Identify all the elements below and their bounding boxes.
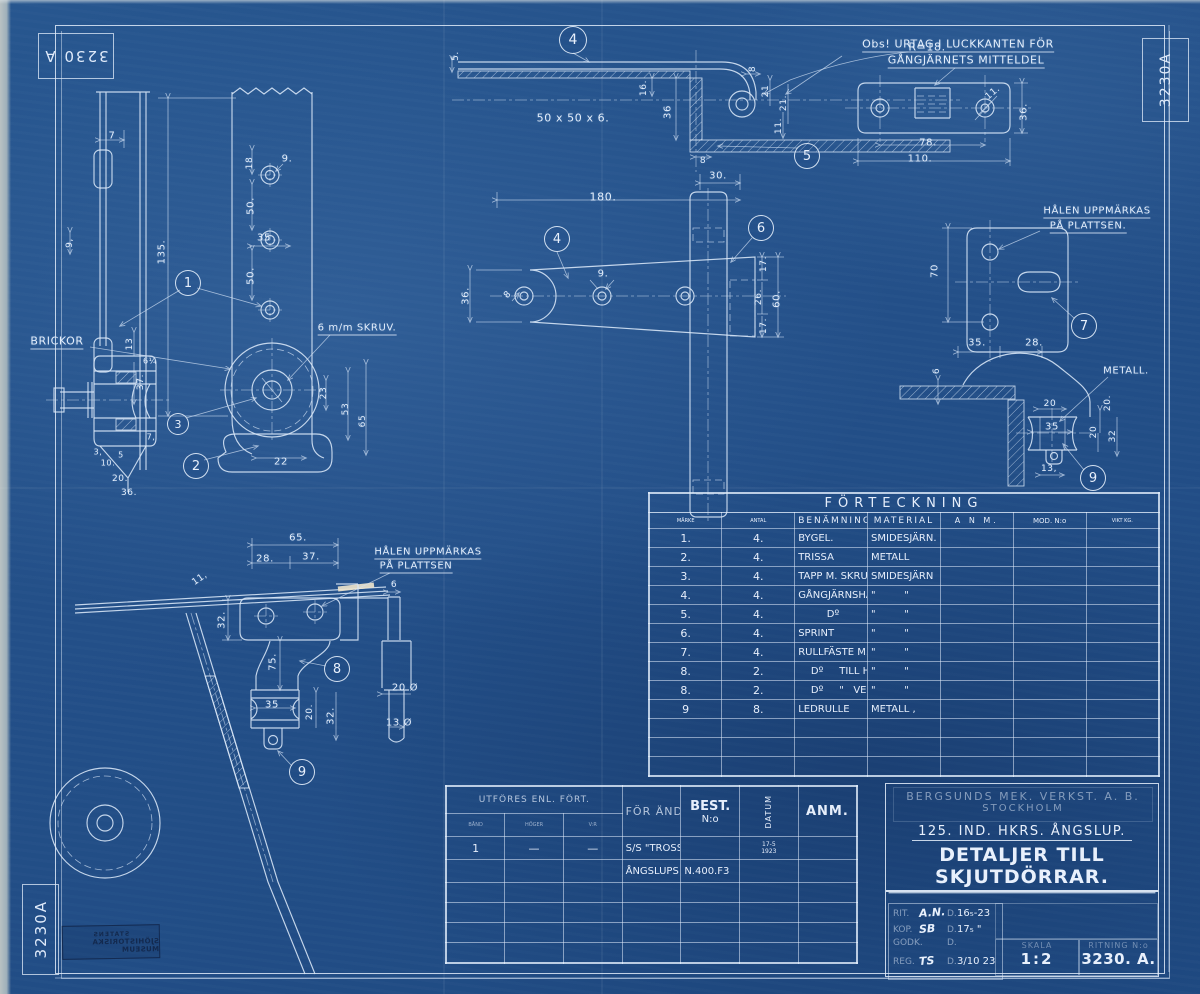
drawing-subtitle: 125. IND. HKRS. ÅNGSLUP. (886, 824, 1158, 839)
order-cell: — (505, 837, 564, 860)
dimension-label: 78. (919, 138, 937, 149)
order-subcolumn-header: BÅND (446, 814, 505, 837)
parts-table-row: 3.4.TAPP M. SKRUV Ö. BRICKORSMIDESJÄRN (649, 567, 1159, 586)
parts-cell (1086, 567, 1159, 586)
drawing-number-stamp-bottom-left: 3230A (22, 884, 59, 975)
parts-cell (722, 757, 795, 777)
parts-cell: Dº " VENSTER (795, 681, 868, 700)
dimension-label: 110. (908, 154, 933, 165)
parts-cell (722, 738, 795, 757)
parts-cell: 4. (722, 586, 795, 605)
signature-lab: RIT. (893, 909, 919, 919)
dimension-label: 32. (326, 707, 337, 725)
signature-sig: TS (919, 953, 948, 968)
parts-cell: 1. (649, 529, 722, 548)
parts-list-table: FÖRTECKNING MÄRKEANTALBENÄMNINGMATERIALA… (648, 492, 1160, 777)
parts-cell (868, 757, 941, 777)
datum-label: DATUM (764, 795, 773, 829)
dimension-label: 65 (358, 415, 368, 428)
museum-stamp-line2: SJÖHISTORISKA MUSEUM (63, 937, 159, 955)
parts-cell (868, 719, 941, 738)
order-subcolumn-header: HÖGER (505, 814, 564, 837)
parts-cell (1086, 605, 1159, 624)
parts-cell (1013, 643, 1086, 662)
dimension-label: 53 (341, 403, 351, 416)
parts-cell (795, 719, 868, 738)
parts-cell: BYGEL. (795, 529, 868, 548)
dimension-label: 18 (245, 157, 255, 170)
parts-column-header: MATERIAL (868, 513, 941, 529)
parts-cell (1013, 757, 1086, 777)
parts-cell (940, 738, 1013, 757)
parts-cell (1013, 567, 1086, 586)
order-table-row (446, 883, 857, 903)
drawing-title-text: DETALJER TILL SKJUTDÖRRAR. (886, 844, 1158, 892)
signature-dd: D. (947, 925, 957, 935)
parts-cell: Dº TILL HÖGER (795, 662, 868, 681)
dimension-label: 35 (1045, 422, 1059, 433)
dimension-label: 7, (147, 433, 156, 442)
dimension-label: 6 (391, 580, 397, 590)
parts-cell (795, 738, 868, 757)
parts-cell: 8. (649, 681, 722, 700)
part-balloon: 7 (1071, 313, 1097, 339)
order-cell: S/S "TROSSÖ" KARLSKRONA (622, 837, 681, 860)
dimension-label: 65. (289, 533, 307, 544)
paper-edge (0, 0, 11, 994)
parts-column-header: MÄRKE (649, 513, 722, 529)
scale-value: 1:2 (996, 950, 1078, 968)
parts-table-row: 5.4. Dº" " (649, 605, 1159, 624)
parts-cell (1013, 719, 1086, 738)
order-header-andamal: FÖR ÄNDAMÅL (622, 786, 681, 837)
dimension-label: 32 (1108, 430, 1118, 443)
dimension-label: 32. (217, 611, 228, 629)
dimension-label: 8 (700, 156, 706, 166)
parts-cell (1013, 624, 1086, 643)
dimension-label: 50. (246, 197, 257, 215)
part-balloon: 3 (167, 413, 189, 435)
parts-cell (1086, 719, 1159, 738)
signature-sig: SB (919, 921, 948, 936)
parts-table-body: FÖRTECKNING MÄRKEANTALBENÄMNINGMATERIALA… (649, 493, 1159, 776)
order-cell (622, 903, 681, 923)
order-cell (563, 943, 622, 964)
company-stamp: BERGSUNDS MEK. VERKST. A. B. STOCKHOLM (893, 787, 1153, 822)
dimension-label: 21 (761, 85, 771, 98)
order-cell (681, 943, 740, 964)
order-table-row: ÅNGSLUPS A.B.N.400.F3 (446, 860, 857, 883)
parts-table-title: FÖRTECKNING (649, 493, 1159, 513)
dimension-label: 20. (305, 704, 315, 720)
parts-table-row: 6.4.SPRINT" " (649, 624, 1159, 643)
parts-cell: " " (868, 624, 941, 643)
parts-cell: TAPP M. SKRUV Ö. BRICKOR (795, 567, 868, 586)
parts-cell: 3. (649, 567, 722, 586)
parts-column-header: A N M. (940, 513, 1013, 529)
paper-edge-top (0, 0, 1200, 4)
parts-cell: 4. (722, 548, 795, 567)
dimension-label: 75. (268, 653, 279, 671)
order-cell (740, 903, 799, 923)
dimension-label: 17. (759, 256, 769, 272)
order-cell (798, 837, 857, 860)
order-table-row: 1——S/S "TROSSÖ" KARLSKRONA17-51923 (446, 837, 857, 860)
order-cell (622, 923, 681, 943)
parts-cell: " " (868, 605, 941, 624)
order-cell (505, 903, 564, 923)
stamp-text: 3230 A (43, 47, 108, 65)
order-datum-line: 17-5 (743, 841, 795, 848)
best-label: BEST. (684, 799, 736, 814)
dimension-label: 17. (759, 318, 769, 334)
order-cell: — (563, 837, 622, 860)
dimension-label: 21. (779, 95, 789, 111)
drawing-number-value: 3230. A. (1080, 950, 1157, 968)
parts-cell (1013, 738, 1086, 757)
dimension-label: 13 (125, 338, 135, 351)
part-balloon: 4 (544, 226, 570, 252)
parts-cell (940, 548, 1013, 567)
dimension-label: 20 (1044, 399, 1057, 409)
empty-field-box (995, 903, 1158, 939)
parts-cell (940, 700, 1013, 719)
parts-table-row: 8.2. Dº TILL HÖGER" " (649, 662, 1159, 681)
parts-cell (1013, 662, 1086, 681)
parts-table-title-row: FÖRTECKNING (649, 493, 1159, 513)
parts-cell (1013, 548, 1086, 567)
stamp-text: 3230A (1158, 52, 1174, 107)
dimension-label: PÅ PLATTSEN. (1050, 221, 1127, 234)
signature-dd: D. (947, 909, 957, 919)
dimension-label: 5. (451, 51, 461, 61)
parts-cell (1086, 586, 1159, 605)
dimension-label: 20. (1103, 395, 1113, 411)
company-city: STOCKHOLM (894, 803, 1152, 814)
order-table-row (446, 903, 857, 923)
parts-cell (722, 719, 795, 738)
parts-cell: " " (868, 643, 941, 662)
signature-row: REG.TSD.3/10 23 (893, 954, 998, 970)
part-balloon: 9 (1080, 465, 1106, 491)
order-cell (563, 883, 622, 903)
parts-cell: 4. (722, 567, 795, 586)
order-cell (798, 923, 857, 943)
drawing-number-label: RITNING N:o (1080, 941, 1157, 950)
parts-column-header: ANTAL (722, 513, 795, 529)
dimension-label: 36. (461, 287, 472, 305)
parts-column-header: BENÄMNING (795, 513, 868, 529)
parts-cell: GÅNGJÄRNSHALVA (795, 586, 868, 605)
parts-cell: 4. (649, 586, 722, 605)
scale-box: SKALA 1:2 (995, 939, 1079, 976)
dimension-label: 6 (932, 368, 942, 374)
dimension-label: GÅNGJÄRNETS MITTELDEL (888, 54, 1045, 69)
parts-cell (1086, 643, 1159, 662)
parts-cell (1086, 624, 1159, 643)
parts-cell (649, 719, 722, 738)
parts-table-row: 2.4.TRISSAMETALL (649, 548, 1159, 567)
parts-cell: 5. (649, 605, 722, 624)
order-cell (681, 837, 740, 860)
parts-cell: SMIDESJÄRN (868, 567, 941, 586)
parts-cell: 2. (649, 548, 722, 567)
parts-table-empty-row (649, 738, 1159, 757)
order-cell: N.400.F3 (681, 860, 740, 883)
parts-table-row: 4.4.GÅNGJÄRNSHALVA" " (649, 586, 1159, 605)
dimension-label: 3, (94, 448, 103, 457)
parts-cell: Dº (795, 605, 868, 624)
parts-table-empty-row (649, 719, 1159, 738)
parts-cell (1086, 738, 1159, 757)
dimension-label: 37. (302, 552, 320, 563)
parts-cell: 6. (649, 624, 722, 643)
parts-cell: 2. (722, 681, 795, 700)
parts-cell (1013, 586, 1086, 605)
dimension-label: 36. (1019, 103, 1030, 121)
order-cell (446, 860, 505, 883)
parts-cell (1086, 757, 1159, 777)
signature-lab: KOP. (893, 925, 919, 935)
order-cell (446, 883, 505, 903)
parts-cell (1013, 700, 1086, 719)
part-balloon: 9 (289, 759, 315, 785)
parts-cell: SMIDESJÄRN. (868, 529, 941, 548)
parts-cell (940, 529, 1013, 548)
museum-stamp: STATENS SJÖHISTORISKA MUSEUM (62, 924, 161, 960)
parts-cell: 8. (649, 662, 722, 681)
signature-date: 17₅ " (957, 924, 982, 935)
parts-cell (1086, 548, 1159, 567)
part-balloon: 1 (175, 270, 201, 296)
dimension-label: 28. (256, 554, 274, 565)
order-table-row (446, 943, 857, 964)
parts-cell (795, 757, 868, 777)
parts-cell: RULLFÄSTE M. BRICKA Ö. SPRINT (795, 643, 868, 662)
best-no-label: N:o (684, 814, 736, 825)
parts-cell (940, 605, 1013, 624)
order-cell (563, 923, 622, 943)
order-datum-line: 1923 (743, 848, 795, 855)
parts-table-row: 7.4.RULLFÄSTE M. BRICKA Ö. SPRINT" " (649, 643, 1159, 662)
parts-table-row: 98.LEDRULLEMETALL , (649, 700, 1159, 719)
order-cell (505, 943, 564, 964)
dimension-label: 50 x 50 x 6. (537, 112, 610, 125)
order-cell (681, 923, 740, 943)
dimension-label: 26. (754, 289, 764, 305)
order-cell (446, 943, 505, 964)
parts-cell: " " (868, 586, 941, 605)
signature-date: 3/10 23 (957, 956, 995, 967)
order-cell (740, 883, 799, 903)
parts-cell: " " (868, 662, 941, 681)
order-cell (681, 883, 740, 903)
signature-sig: A.N. (919, 905, 948, 920)
parts-cell (1013, 681, 1086, 700)
dimension-label: 11. (774, 118, 784, 134)
dimension-label: 13, (1041, 464, 1057, 474)
order-cell (740, 923, 799, 943)
dimension-label: HÅLEN UPPMÄRKAS (1043, 206, 1150, 219)
order-header-anm: ANM. (798, 786, 857, 837)
order-cell (740, 943, 799, 964)
dimension-label: 35 (265, 700, 279, 711)
dimension-label: 23 (319, 387, 329, 400)
parts-cell (1086, 662, 1159, 681)
dimension-label: 135. (157, 240, 168, 265)
signature-lab: GODK. (893, 938, 919, 948)
parts-cell (1013, 529, 1086, 548)
parts-cell: SPRINT (795, 624, 868, 643)
parts-cell (940, 662, 1013, 681)
order-cell (740, 860, 799, 883)
company-name: BERGSUNDS MEK. VERKST. A. B. (894, 790, 1152, 803)
part-balloon: 8 (324, 656, 350, 682)
parts-cell (1013, 605, 1086, 624)
parts-cell: METALL (868, 548, 941, 567)
dimension-label: 60. (772, 290, 783, 308)
dimension-label: 10. (101, 459, 116, 468)
order-cell: 1 (446, 837, 505, 860)
signature-row: GODK.D. (893, 938, 998, 954)
parts-cell: 8. (722, 700, 795, 719)
drawing-number-stamp-top-left: 3230 A (38, 33, 114, 79)
dimension-label: 5 (118, 451, 124, 460)
part-balloon: 2 (183, 453, 209, 479)
parts-cell: " " (868, 681, 941, 700)
parts-cell (940, 567, 1013, 586)
parts-cell: 2. (722, 662, 795, 681)
order-table: UTFÖRES ENL. FÖRT. FÖR ÄNDAMÅL BEST. N:o… (445, 785, 858, 964)
order-cell (505, 923, 564, 943)
dimension-label: 13 Ø (386, 718, 412, 729)
part-balloon: 4 (559, 26, 587, 54)
order-table-row (446, 923, 857, 943)
drawing-number-stamp-top-right: 3230A (1142, 38, 1189, 122)
signature-dd: D. (947, 957, 957, 967)
order-cell (681, 903, 740, 923)
dimension-label: 6 m/m SKRUV. (318, 323, 397, 336)
title-block: BERGSUNDS MEK. VERKST. A. B. STOCKHOLM 1… (885, 783, 1159, 977)
drawing-number-box: RITNING N:o 3230. A. (1079, 939, 1158, 976)
dimension-label: 28. (1025, 338, 1043, 349)
parts-column-header: VIKT KG. (1086, 513, 1159, 529)
parts-cell: 7. (649, 643, 722, 662)
dimension-label: 6¼ (143, 357, 157, 366)
signature-date: 16₅-23 (957, 908, 990, 919)
dimension-label: HÅLEN UPPMÄRKAS (374, 547, 481, 560)
dimension-label: 8 (748, 66, 758, 72)
part-balloon: 6 (748, 215, 774, 241)
order-cell (798, 903, 857, 923)
signature-sig (919, 944, 947, 946)
parts-cell (940, 586, 1013, 605)
order-cell (446, 923, 505, 943)
dimension-label: 70 (930, 264, 941, 278)
parts-table-row: 8.2. Dº " VENSTER" " (649, 681, 1159, 700)
order-header-datum: DATUM (740, 786, 799, 837)
dimension-label: METALL. (1103, 366, 1149, 377)
parts-cell (868, 738, 941, 757)
stamp-text: 3230A (32, 900, 50, 958)
dimension-label: 20. (112, 474, 128, 484)
order-table-header-row1: UTFÖRES ENL. FÖRT. FÖR ÄNDAMÅL BEST. N:o… (446, 786, 857, 814)
drawing-title: DETALJER TILL SKJUTDÖRRAR. (886, 844, 1158, 892)
parts-cell (1086, 700, 1159, 719)
parts-cell: 4. (722, 624, 795, 643)
dimension-label: 30. (709, 171, 727, 182)
parts-cell: 4. (722, 643, 795, 662)
parts-table-header: MÄRKEANTALBENÄMNINGMATERIALA N M.MOD. N:… (649, 513, 1159, 529)
dimension-label: 180. (590, 191, 617, 204)
order-cell: ÅNGSLUPS A.B. (622, 860, 681, 883)
parts-table-empty-row (649, 757, 1159, 777)
parts-cell (940, 757, 1013, 777)
dimension-label: 9. (282, 154, 293, 165)
scale-label: SKALA (996, 941, 1078, 950)
dimension-label: 36 (663, 105, 674, 119)
parts-cell (1086, 529, 1159, 548)
signature-row: RIT.A.N.D.16₅-23 (893, 906, 998, 922)
dimension-label: 22 (274, 457, 288, 468)
order-cell (563, 860, 622, 883)
dimension-label: 35 (257, 233, 271, 244)
order-cell (563, 903, 622, 923)
order-cell: 17-51923 (740, 837, 799, 860)
parts-cell: METALL , (868, 700, 941, 719)
order-header-utfores: UTFÖRES ENL. FÖRT. (446, 786, 622, 814)
parts-table-row: 1.4.BYGEL.SMIDESJÄRN. (649, 529, 1159, 548)
dimension-label: 50. (246, 267, 257, 285)
parts-cell (940, 624, 1013, 643)
parts-cell: TRISSA (795, 548, 868, 567)
dimension-label: 7 (109, 131, 116, 142)
parts-cell (649, 757, 722, 777)
dimension-label: PÅ PLATTSEN (380, 561, 453, 574)
parts-cell (649, 738, 722, 757)
parts-cell: 4. (722, 605, 795, 624)
dimension-label: Obs! URTAG I LUCKKANTEN FÖR (862, 38, 1054, 53)
blueprint-sheet: .lw{stroke:#dbe8f8;fill:none;stroke-widt… (0, 0, 1200, 994)
order-cell (446, 903, 505, 923)
parts-cell (940, 719, 1013, 738)
signature-box: RIT.A.N.D.16₅-23KOP.SBD.17₅ "GODK.D.REG.… (888, 903, 1003, 980)
parts-cell: LEDRULLE (795, 700, 868, 719)
dimension-label: 36. (121, 488, 137, 498)
order-cell (505, 860, 564, 883)
dimension-label: 9. (598, 269, 609, 280)
order-cell (798, 883, 857, 903)
signature-lab: REG. (893, 957, 919, 967)
order-cell (798, 943, 857, 964)
dimension-label: 35. (968, 338, 986, 349)
order-cell (622, 943, 681, 964)
drawing-subtitle-text: 125. IND. HKRS. ÅNGSLUP. (912, 824, 1132, 841)
order-cell (798, 860, 857, 883)
parts-cell: 9 (649, 700, 722, 719)
order-cell (505, 883, 564, 903)
signature-dd: D. (947, 938, 957, 948)
order-header-best: BEST. N:o (681, 786, 740, 837)
dimension-label: BRICKOR (30, 335, 83, 350)
parts-cell: 4. (722, 529, 795, 548)
dimension-label: 20 (1089, 426, 1099, 439)
parts-cell (940, 643, 1013, 662)
signature-row: KOP.SBD.17₅ " (893, 922, 998, 938)
part-balloon: 5 (794, 143, 820, 169)
parts-column-header: MOD. N:o (1013, 513, 1086, 529)
parts-cell (1086, 681, 1159, 700)
